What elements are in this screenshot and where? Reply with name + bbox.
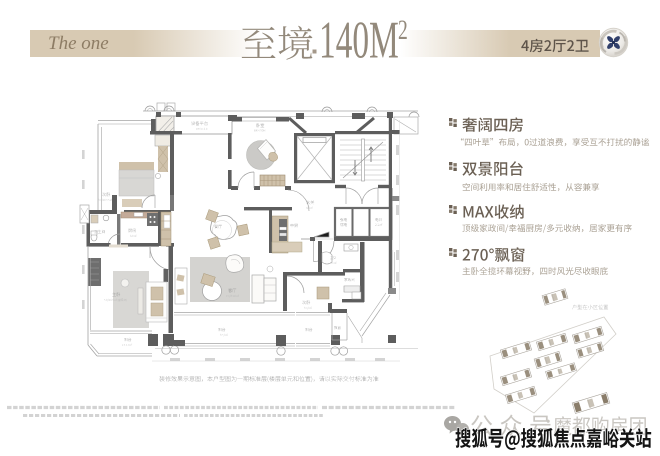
svg-text:The one: The one bbox=[48, 33, 109, 54]
